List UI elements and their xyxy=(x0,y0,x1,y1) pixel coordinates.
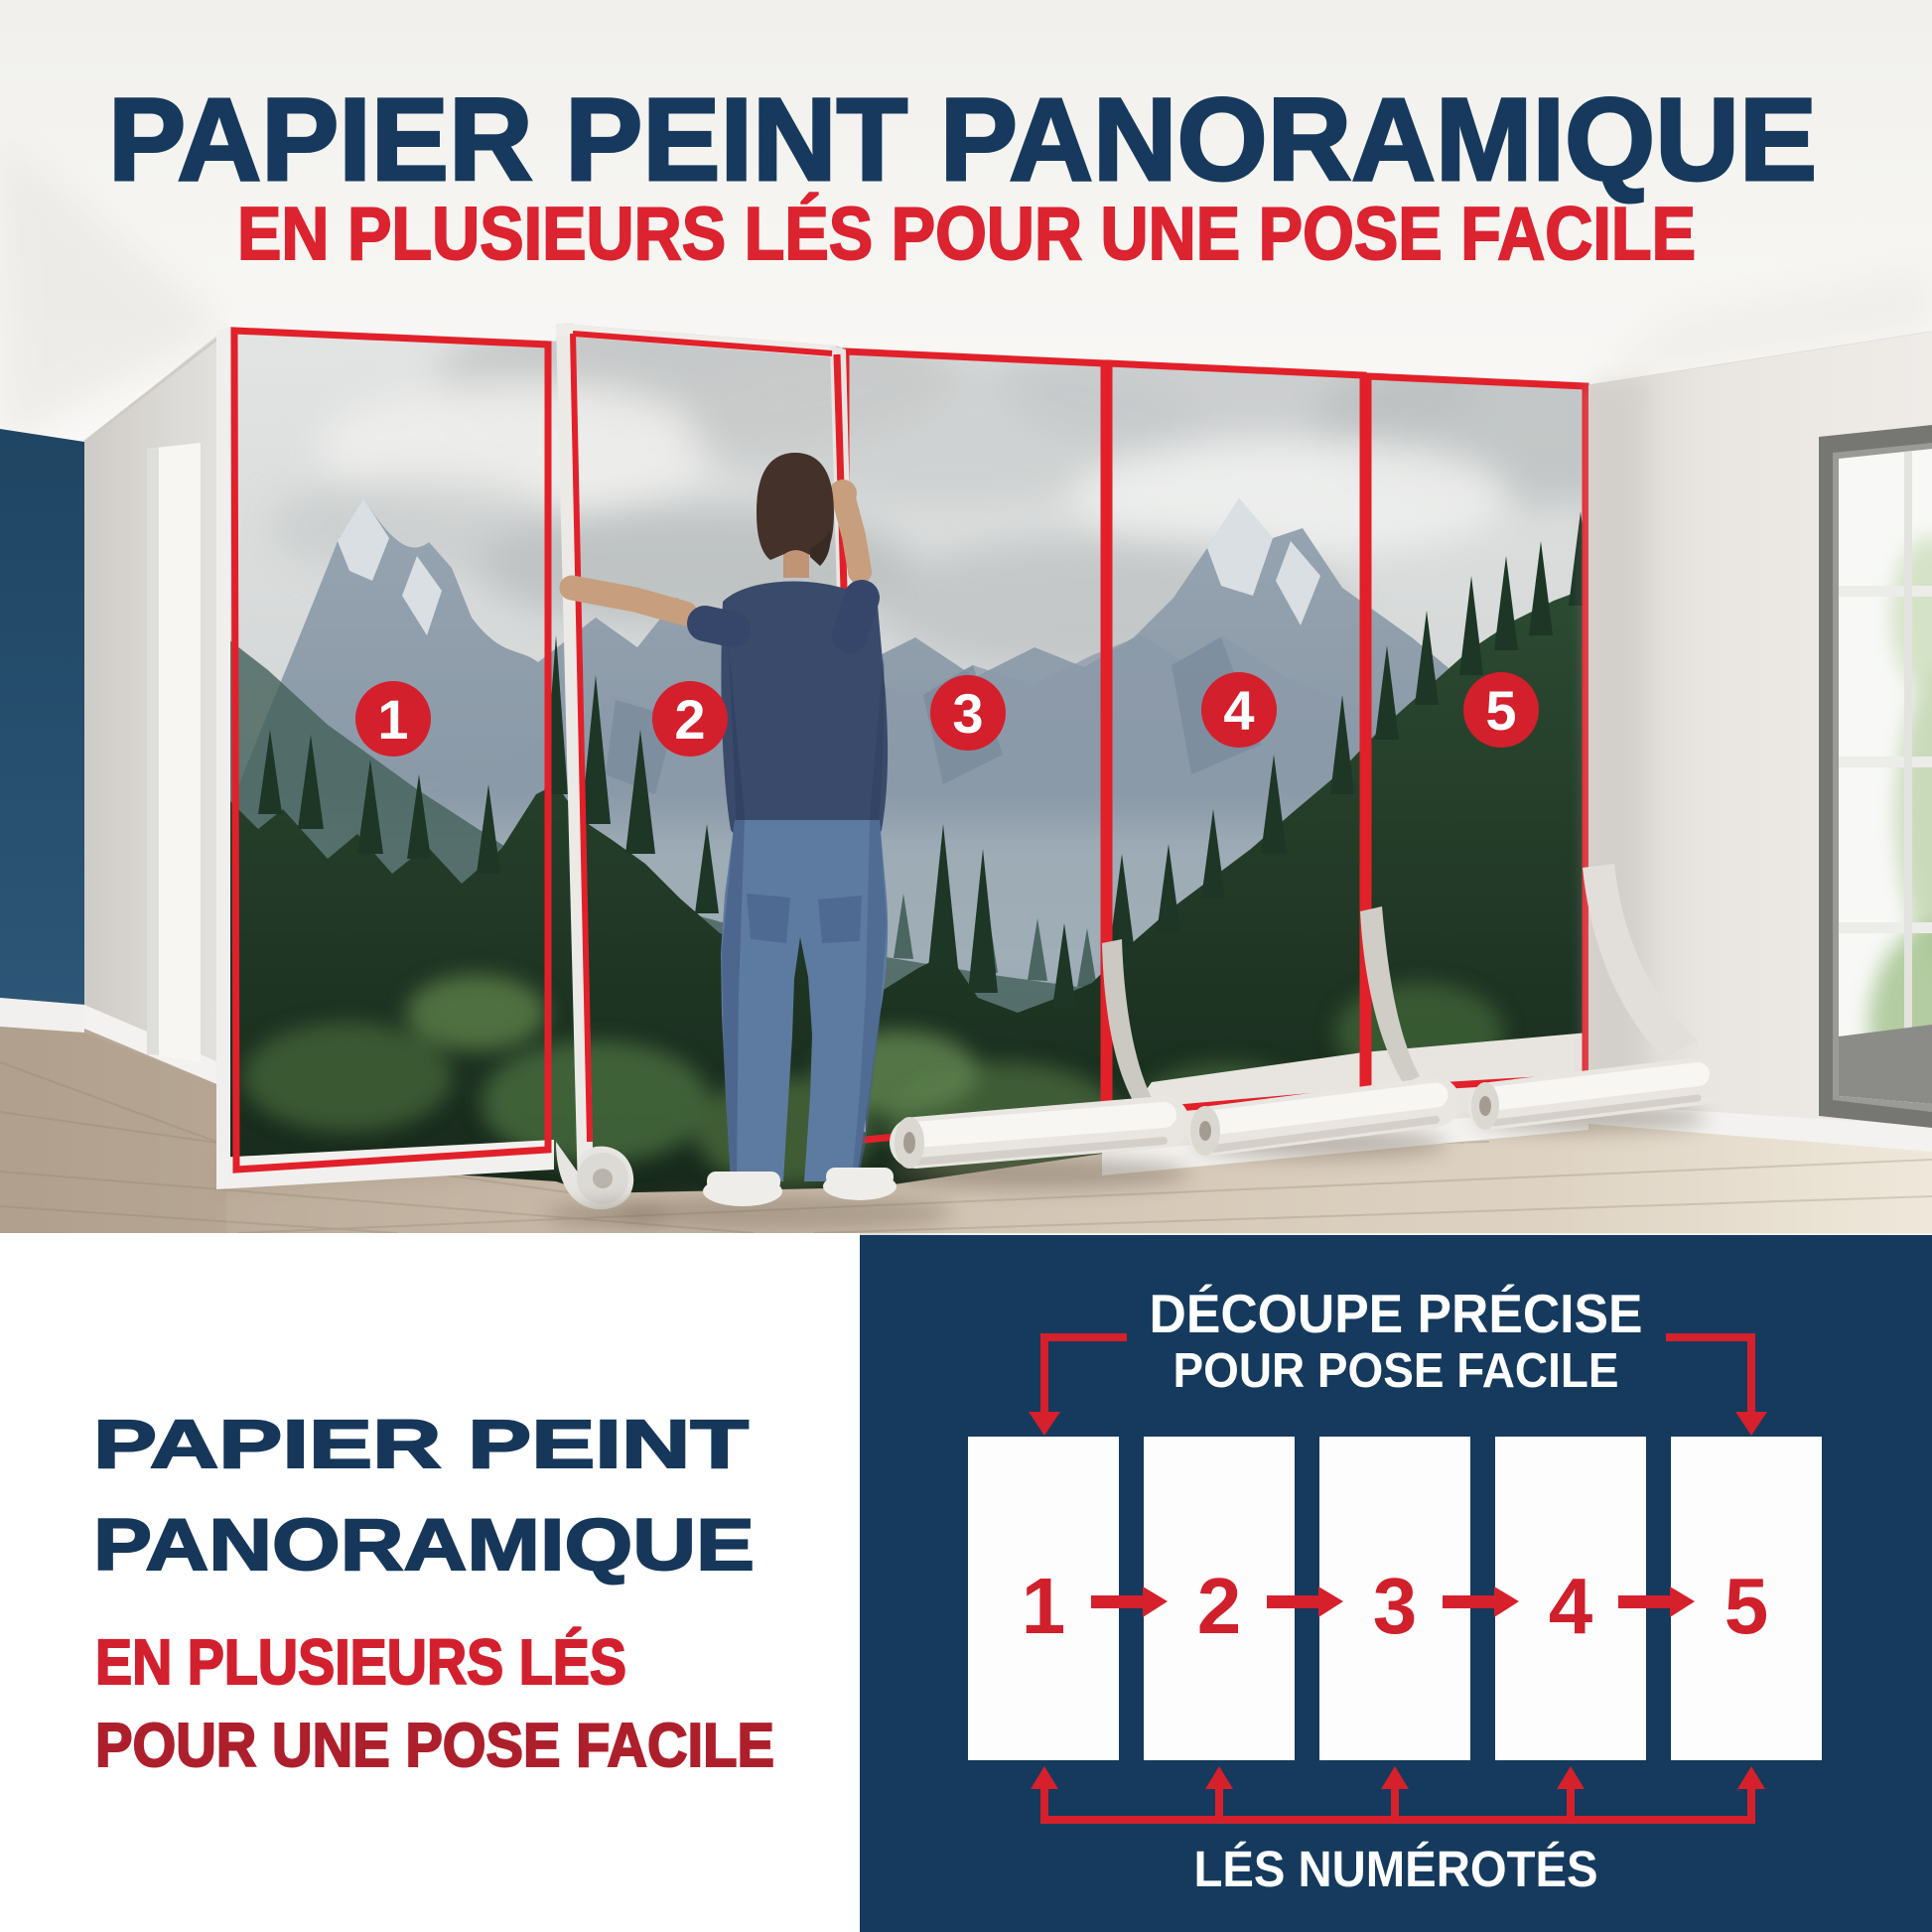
svg-text:3: 3 xyxy=(1373,1562,1418,1650)
svg-text:POUR UNE POSE FACILE: POUR UNE POSE FACILE xyxy=(95,1712,774,1780)
svg-text:5: 5 xyxy=(1485,679,1516,742)
svg-text:PANORAMIQUE: PANORAMIQUE xyxy=(93,1505,755,1586)
svg-text:EN PLUSIEURS LÉS: EN PLUSIEURS LÉS xyxy=(95,1626,626,1698)
svg-text:EN PLUSIEURS LÉS POUR UNE POSE: EN PLUSIEURS LÉS POUR UNE POSE FACILE xyxy=(237,192,1696,275)
svg-text:3: 3 xyxy=(952,682,983,745)
svg-text:LÉS NUMÉROTÉS: LÉS NUMÉROTÉS xyxy=(1194,1841,1598,1897)
svg-text:4: 4 xyxy=(1223,679,1254,742)
svg-text:DÉCOUPE PRÉCISE: DÉCOUPE PRÉCISE xyxy=(1150,1283,1643,1344)
svg-text:PAPIER PEINT PANORAMIQUE: PAPIER PEINT PANORAMIQUE xyxy=(108,74,1817,206)
svg-text:POUR POSE FACILE: POUR POSE FACILE xyxy=(1173,1344,1619,1398)
svg-text:1: 1 xyxy=(377,688,408,751)
svg-text:1: 1 xyxy=(1022,1562,1066,1650)
svg-text:5: 5 xyxy=(1725,1562,1769,1650)
svg-text:PAPIER PEINT: PAPIER PEINT xyxy=(93,1406,749,1482)
svg-text:4: 4 xyxy=(1549,1562,1593,1650)
svg-text:2: 2 xyxy=(674,688,705,751)
svg-text:2: 2 xyxy=(1197,1562,1242,1650)
